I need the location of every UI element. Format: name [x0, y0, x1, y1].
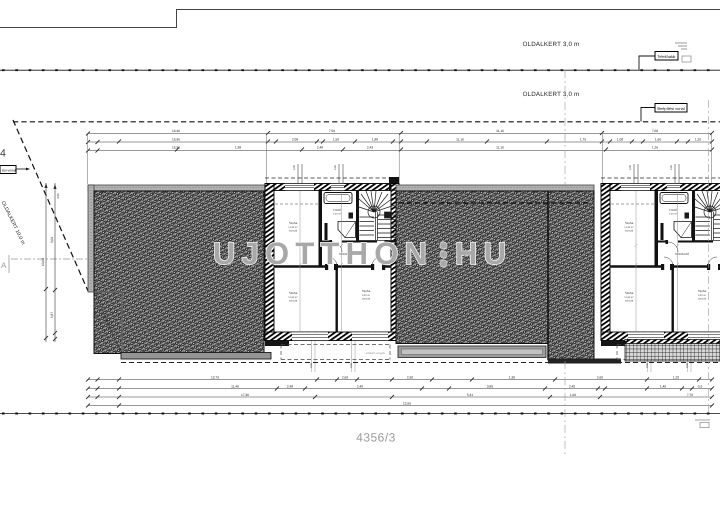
svg-text:7,50: 7,50 [329, 129, 335, 133]
svg-text:Szoba: Szoba [362, 289, 371, 293]
svg-text:ési vonal: ési vonal [2, 169, 16, 173]
svg-text:1,20: 1,20 [673, 375, 679, 379]
svg-text:1,26: 1,26 [652, 145, 658, 149]
svg-text:1,88: 1,88 [372, 137, 378, 141]
svg-text:7,70: 7,70 [687, 393, 693, 397]
svg-text:11,46: 11,46 [231, 384, 239, 388]
svg-text:2,48: 2,48 [317, 145, 323, 149]
svg-text:15,96: 15,96 [172, 145, 180, 149]
svg-text:1,38: 1,38 [235, 145, 241, 149]
svg-text:Beépítési vonal: Beépítési vonal [657, 106, 684, 111]
svg-text:1,75: 1,75 [580, 137, 586, 141]
svg-text:2,08: 2,08 [292, 137, 298, 141]
svg-text:10,00: 10,00 [41, 258, 45, 266]
svg-text:Telekhatár: Telekhatár [657, 54, 676, 59]
svg-text:3,00: 3,00 [50, 237, 54, 243]
svg-text:4356/3: 4356/3 [356, 431, 396, 445]
svg-text:HU: HU [455, 236, 512, 271]
svg-text:1,08: 1,08 [617, 137, 623, 141]
svg-text:11,16: 11,16 [496, 145, 504, 149]
svg-text:7,06: 7,06 [652, 129, 658, 133]
svg-text:11,16: 11,16 [496, 129, 504, 133]
svg-text:4,50: 4,50 [56, 193, 60, 199]
svg-text:laminált: laminált [289, 230, 298, 233]
svg-text:0,90: 0,90 [350, 362, 353, 368]
svg-text:UJOTTHON: UJOTTHON [213, 236, 433, 271]
svg-text:OLDALKERT 3,0 m: OLDALKERT 3,0 m [523, 91, 580, 98]
svg-text:2,60: 2,60 [342, 375, 348, 379]
svg-text:15,96: 15,96 [172, 137, 180, 141]
svg-text:5,20 m²: 5,20 m² [333, 213, 341, 216]
svg-text:0,90: 0,90 [293, 164, 296, 170]
svg-text:2,48: 2,48 [287, 384, 293, 388]
svg-text:2,40: 2,40 [357, 384, 363, 388]
svg-text:2,60: 2,60 [597, 375, 603, 379]
svg-text:2,43: 2,43 [367, 145, 373, 149]
svg-text:A: A [1, 261, 7, 270]
svg-text:1,66: 1,66 [570, 393, 576, 397]
svg-text:laminált: laminált [362, 298, 371, 301]
svg-text:11,16: 11,16 [456, 137, 464, 141]
svg-text:1,30: 1,30 [509, 375, 515, 379]
svg-text:1,46: 1,46 [660, 384, 666, 388]
svg-text:17,36: 17,36 [241, 393, 249, 397]
svg-text:1,50: 1,50 [333, 137, 339, 141]
svg-text:0,9: 0,9 [698, 384, 703, 388]
svg-text:1,66: 1,66 [655, 137, 661, 141]
svg-text:4: 4 [0, 148, 6, 160]
svg-text:2,90: 2,90 [407, 375, 413, 379]
svg-text:0,90: 0,90 [334, 164, 337, 170]
svg-text:16,46: 16,46 [172, 129, 180, 133]
svg-text:13,79: 13,79 [211, 375, 219, 379]
svg-text:2,40: 2,40 [569, 384, 575, 388]
svg-text:OLDALKERT 3,0 m: OLDALKERT 3,0 m [523, 41, 580, 48]
svg-text:12,66: 12,66 [403, 401, 411, 405]
svg-text:OLDALKERT 10,0 m: OLDALKERT 10,0 m [0, 200, 26, 246]
svg-text:3,85: 3,85 [487, 384, 493, 388]
svg-text:Fürdő: Fürdő [333, 208, 341, 212]
svg-text:Szoba: Szoba [289, 291, 298, 295]
svg-text:Zöldtető szegély: Zöldtető szegély [366, 352, 386, 355]
svg-text:5,87: 5,87 [50, 312, 54, 318]
svg-text:laminált: laminált [289, 300, 298, 303]
svg-text:5,31: 5,31 [467, 393, 473, 397]
svg-text:1,26: 1,26 [695, 137, 701, 141]
svg-text:Szoba: Szoba [289, 221, 298, 225]
svg-text:0,90: 0,90 [310, 362, 313, 368]
